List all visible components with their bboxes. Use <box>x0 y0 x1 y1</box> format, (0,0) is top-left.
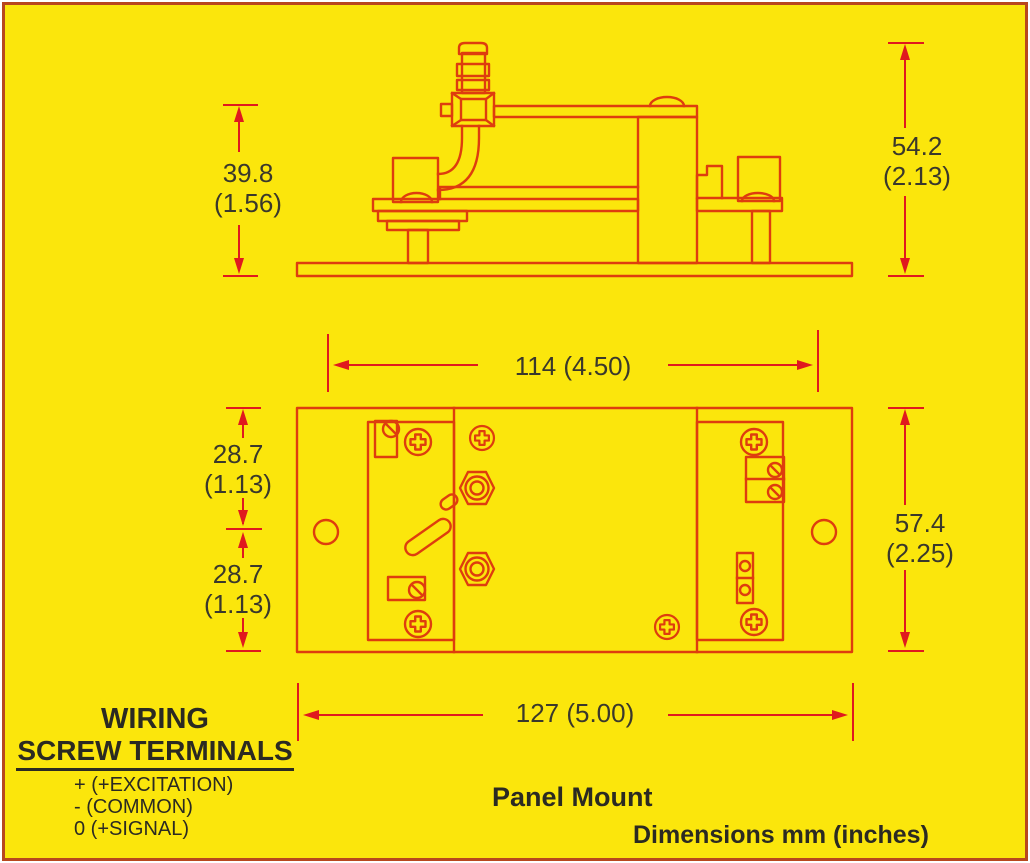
mounting-hole-left <box>314 520 338 544</box>
units-note: Dimensions mm (inches) <box>633 821 929 850</box>
dim-label-overall-height-side: 54.2 (2.13) <box>883 131 951 191</box>
plan-left-panel <box>368 422 454 640</box>
union-fitting <box>441 93 494 126</box>
plan-right-panel <box>697 422 783 640</box>
side-left-flange-step2 <box>387 221 459 230</box>
phillips-screws <box>405 426 767 639</box>
screenshot-page: 39.8 (1.56) 54.2 (2.13) 114 (4.50) 28.7 … <box>0 0 1030 863</box>
side-left-flange-step1 <box>378 211 467 221</box>
dim-label-terminal-height: 39.8 (1.56) <box>214 158 282 218</box>
dim-mm: 54.2 <box>883 131 951 161</box>
wiring-title-line2: SCREW TERMINALS <box>16 735 294 771</box>
top-view-drawing <box>297 408 852 652</box>
hose-barb-fitting <box>457 43 489 93</box>
dim-inches: (2.13) <box>883 161 951 191</box>
dim-inches: (2.25) <box>886 538 954 568</box>
view-caption: Panel Mount <box>492 782 653 813</box>
wiring-heading: WIRING SCREW TERMINALS <box>16 704 294 771</box>
wiring-title-line1: WIRING <box>16 704 294 735</box>
side-right-post <box>752 211 770 263</box>
dim-mm: 28.7 <box>204 559 272 589</box>
plan-tube-tip <box>438 492 459 511</box>
dimension-arrows <box>223 43 924 741</box>
terminal-excitation: + (+EXCITATION) <box>74 774 233 796</box>
plan-left-top-slot <box>375 421 397 457</box>
side-right-terminal-block <box>738 157 780 201</box>
dim-label-overall-width: 127 (5.00) <box>516 698 635 728</box>
dim-label-overall-height-top: 57.4 (2.25) <box>886 508 954 568</box>
side-left-screw-dome <box>401 193 432 202</box>
side-base-plate <box>297 263 852 276</box>
side-left-terminal-block <box>393 158 438 202</box>
dim-inches: (1.13) <box>204 589 272 619</box>
hex-nut-upper <box>460 472 494 504</box>
terminal-legend: + (+EXCITATION) - (COMMON) 0 (+SIGNAL) <box>74 774 233 840</box>
side-top-bar <box>494 106 697 117</box>
side-view-drawing <box>297 43 852 276</box>
plan-dividers <box>454 408 697 652</box>
terminal-common: - (COMMON) <box>74 796 233 818</box>
dim-inches: (1.13) <box>204 469 272 499</box>
side-right-block <box>638 117 697 263</box>
side-left-post <box>408 230 428 263</box>
dim-mm: 39.8 <box>214 158 282 188</box>
side-upper-strip <box>440 187 638 199</box>
terminal-signal: 0 (+SIGNAL) <box>74 818 233 840</box>
tube-outer-curve <box>438 126 462 174</box>
dim-label-hole-to-top: 28.7 (1.13) <box>204 439 272 499</box>
dim-inches: (1.56) <box>214 188 282 218</box>
side-right-step <box>697 166 722 198</box>
mounting-hole-right <box>812 520 836 544</box>
side-top-bump <box>650 97 684 106</box>
dim-mm: 57.4 <box>886 508 954 538</box>
dim-label-body-width: 114 (4.50) <box>515 351 632 381</box>
plan-outline <box>297 408 852 652</box>
hex-nut-lower <box>460 553 494 585</box>
plan-tube-body <box>402 516 453 558</box>
dim-label-hole-to-bottom: 28.7 (1.13) <box>204 559 272 619</box>
jumper-block <box>737 553 753 603</box>
dim-mm: 28.7 <box>204 439 272 469</box>
